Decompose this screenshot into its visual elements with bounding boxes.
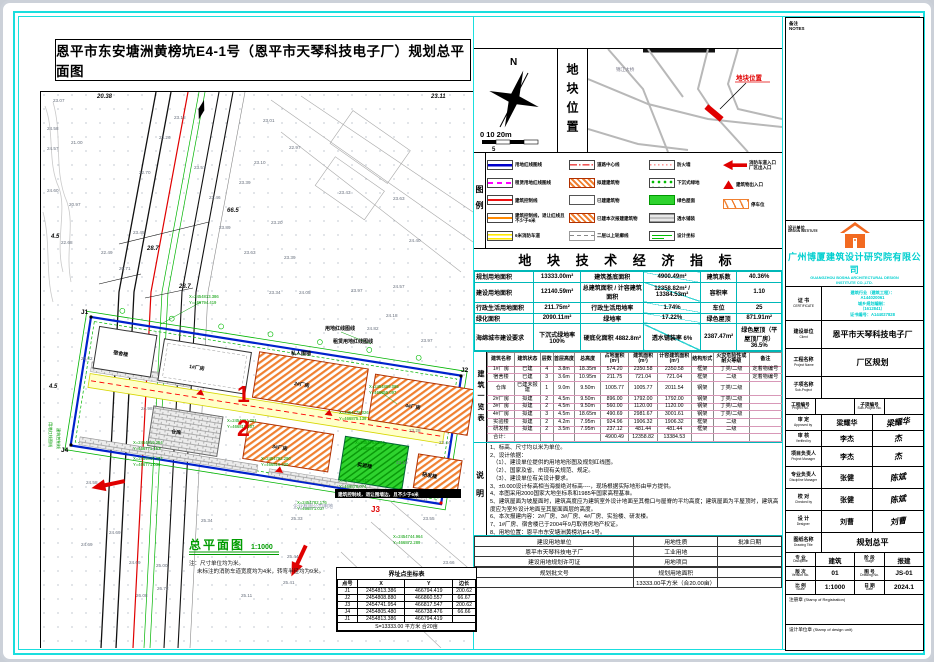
table-cell: 17.22% (644, 313, 701, 324)
legend-item: 建筑控制线 (487, 195, 569, 205)
table-cell: 实验楼 (488, 418, 515, 426)
table-cell: 拟建 (514, 418, 540, 426)
project-row: 工程名称Project Name 厂区规划 (786, 349, 923, 377)
legend-item: 绿色屋面 (649, 195, 723, 205)
table-cell: 2 (540, 396, 553, 404)
checked-name: 张健 (822, 489, 873, 510)
certificate-lines: 建筑行业（建筑工程）：A144020061城乡规划编制：（1612841）证书编… (822, 287, 923, 320)
plan-label: Y=466872.289 (393, 540, 421, 545)
legend-swatch-icon (487, 178, 513, 188)
table-cell: 工业用地 (634, 547, 718, 557)
company-name: 广州博厦建筑设计研究院有限公司 (786, 250, 923, 276)
legend-col-4: 消防车道入口 厂区出入口建筑物出入口停车位 (723, 156, 781, 245)
plan-label: X=2454778.026 (339, 410, 369, 415)
legend-label: 拟建建筑物 (597, 180, 647, 185)
table-header: 点号 (338, 580, 358, 588)
table-header: Y (405, 580, 453, 588)
legend-label: 道路中心线 (597, 162, 647, 167)
legend-label: 建筑控制线 (515, 198, 565, 203)
table-cell: 已建 (514, 366, 540, 374)
table-header: 边长 (453, 580, 476, 588)
map-road-bar (643, 49, 715, 53)
project-no-row: 工程编号Project No. 子项编号Sub-Project No. (786, 399, 923, 415)
table-row: 宿舍楼已建33.6m10.95m211.75721.04721.04框架二级定着… (488, 374, 782, 382)
table-cell: 66.66 (453, 609, 476, 616)
table-cell (514, 434, 540, 442)
table-cell: 绿地率 (581, 313, 644, 324)
plan-label: 23.34 (269, 290, 281, 295)
table-cell: 拟建 (514, 411, 540, 419)
legend-swatch-icon (649, 195, 675, 205)
table-cell (749, 434, 781, 442)
table-cell: 466860.557 (405, 595, 453, 602)
plan-title: 总平面图 (189, 537, 245, 552)
table-cell: 7.95m (575, 418, 601, 426)
legend-item: 租赁用地红线图线 (487, 178, 569, 188)
plan-note-2: 未标注的消防车道宽度均为4米，转弯半径均为9米。 (197, 567, 324, 575)
table-cell: 钢架 (691, 411, 714, 419)
legend-label: 租赁用地红线图线 (515, 180, 565, 185)
table-header: X (357, 580, 405, 588)
scale-date-row: 比 例Scale1:1000 日 期Date2024.1 (786, 581, 923, 595)
table-cell: 1906.32 (629, 418, 658, 426)
legend-item: 下沉式绿地 (649, 178, 723, 188)
legend-col-2: 道路中心线拟建建筑物已建建筑物已建本次报建建筑物二层以上轮廓线 (569, 156, 649, 245)
plan-label: 24.18 (386, 313, 398, 318)
plan-label: 4.5 (48, 384, 58, 390)
plan-label: 23.26 (159, 135, 171, 140)
table-cell: 二级 (714, 374, 750, 382)
table-cell: 12358.82 (629, 434, 658, 442)
plan-label: 23.10 (396, 460, 408, 465)
client-value: 恩平市天琴科技电子厂 (822, 321, 923, 348)
table-cell: 1120.00 (658, 403, 691, 411)
plan-label: 26.72 (157, 586, 169, 591)
table-row: 实验楼拟建24.2m7.95m924.961906.321906.32框架二级 (488, 418, 782, 426)
building-table-strip-label: 建筑一览表 (475, 370, 485, 425)
table-cell: 规划用地面积 (475, 272, 534, 283)
legend-item: 已建本次报建建筑物 (569, 213, 649, 223)
text-line: 1、标高、尺寸均以米为单位。 (490, 445, 779, 453)
scalebar-icon (482, 140, 538, 144)
plan-label: 23.57 (194, 165, 206, 170)
table-cell (718, 547, 782, 557)
plan-label: 23.10 (254, 160, 266, 165)
table-cell: 2454813.386 (357, 588, 405, 595)
plan-label: Y=466771.035 (133, 462, 161, 467)
plan-label: 23.97 (421, 338, 433, 343)
unit-stamp-box: 设计单位章 (Stamp of design unit) (786, 625, 923, 650)
text-line: （2）、国家及省、市现有关规范、规定。 (490, 468, 779, 476)
title-box: 恩平市东安塘洲黄榜坑E4-1号（恩平市天琴科技电子厂）规划总平面图 (55, 39, 471, 81)
table-cell (540, 434, 553, 442)
plan-label: 23.39 (284, 255, 296, 260)
table-cell (718, 578, 782, 588)
discipline-label-en: Discipline (793, 560, 808, 564)
titleblock: 备注NOTES 设计单位DESIGN INSTITUTE 广州博厦建筑设计研究院… (785, 17, 924, 651)
plan-label: 企业有限公司用地 (293, 503, 333, 510)
table-cell: 4.5m (553, 396, 575, 404)
table-cell: 9.50m (575, 381, 601, 395)
table-cell: 仓库 (488, 381, 515, 395)
boundary-point (69, 443, 72, 446)
legend-swatch-icon (569, 213, 595, 223)
table-cell: 3#厂房 (488, 403, 515, 411)
plan-label: 25.11 (241, 593, 253, 598)
legend-item: 道路中心线 (569, 160, 649, 170)
plan-label: 25.44 (287, 554, 299, 559)
table-cell: 4#厂房 (488, 411, 515, 419)
table-cell: 4900.49m² (644, 272, 701, 283)
table-cell: 恩平市天琴科技电子厂 (475, 547, 634, 557)
plan-label: Y=466875.139 (339, 416, 367, 421)
text-line: 7、1#厂房、宿舍楼已于2004年9月取得房地产权证。 (490, 522, 779, 530)
legend-swatch-icon (569, 178, 595, 188)
legend-label: 下沉式绿地 (677, 180, 723, 185)
plan-label: 24.57 (47, 146, 59, 151)
table-cell: 12140.59m² (533, 282, 581, 302)
plan-label: 24.69 (81, 542, 93, 547)
plan-label: X=2454816.254 (133, 456, 163, 461)
location-map: 锦江大桥 地块位置 (588, 49, 782, 152)
table-cell: 2 (540, 418, 553, 426)
legend-swatch-icon (569, 160, 595, 170)
table-cell: 2454805.480 (357, 609, 405, 616)
table-cell: 丁类/二级 (714, 366, 750, 374)
legend-swatch-icon (649, 213, 675, 223)
table-row: 恩平市天琴科技电子厂工业用地 (475, 547, 782, 557)
approved-name: 梁耀华 (822, 415, 873, 430)
plan-note-1: 注：尺寸单位均为米。 (189, 559, 244, 567)
version-drawno-row: 版 次Version No.01 图 号Drawing No.JS-01 (786, 567, 923, 581)
plan-label: J2 (461, 367, 469, 374)
legend-swatch-icon (649, 178, 675, 188)
plan-label: X=2454744.964 (393, 534, 423, 539)
drawing-title-label-en: Drawing Title (794, 544, 813, 548)
site-plan-svg: 总平面图 1:1000 注：尺寸单位均为米。 未标注的消防车道宽度均为4米，转弯… (41, 92, 473, 648)
table-row: J22454808.880466860.55766.67 (338, 595, 476, 602)
stage-label-en: Stage (865, 560, 874, 564)
legend-swatch-icon (487, 231, 513, 241)
table-cell: 二级 (714, 426, 750, 434)
table-cell: 560.00 (601, 403, 629, 411)
table-cell: 721.04 (629, 374, 658, 382)
table-cell: 237.12 (601, 426, 629, 434)
table-cell: 已建 (514, 374, 540, 382)
plan-label: Y=466876.074 (339, 484, 367, 489)
table-cell: 绿色屋顶（平屋顶厂房）36.5% (737, 324, 782, 351)
boundary-point (89, 315, 92, 318)
plan-label: 25.00 (156, 563, 168, 568)
plan-label: 24.69 (109, 530, 121, 535)
table-cell: 容积率 (700, 282, 736, 302)
table-row: 海绵城市建设要求下沉式绿地率 100%硬底化面积 4882.8m²透水铺装率 6… (475, 324, 782, 351)
table-header: 计容建筑面积(m²) (658, 353, 691, 367)
table-cell: 2454808.880 (357, 595, 405, 602)
table-cell: 下沉式绿地率 100% (533, 324, 581, 351)
table-cell: 规划用地面积 (634, 568, 718, 578)
table-cell: 海绵城市建设要求 (475, 324, 534, 351)
table-header: 首层高度 (553, 353, 575, 367)
plan-label: 24.98 (141, 406, 153, 411)
table-cell: 490.69 (601, 411, 629, 419)
client-row: 建设单位Client 恩平市天琴科技电子厂 (786, 321, 923, 349)
table-row: 4#厂房拟建34.5m18.65m490.692981.673001.61钢架丁… (488, 411, 782, 419)
north-arrow-icon: N 0 10 20m 5 (474, 49, 556, 152)
table-cell: 丁类/二级 (714, 411, 750, 419)
table-cell (553, 434, 575, 442)
table-cell: S=13333.00 平方米 合20亩 (338, 623, 476, 631)
table-cell: 1792.00 (629, 396, 658, 404)
table-cell: 3001.61 (658, 411, 691, 419)
table-cell: 建设用地规划许可证 (475, 557, 634, 567)
table-row: 建设用地规划许可证用地项目 (475, 557, 782, 567)
table-cell (453, 616, 476, 623)
table-cell: 绿色屋顶 (700, 313, 736, 324)
table-cell: 框架 (691, 366, 714, 374)
plan-label: 25.41 (283, 580, 295, 585)
table-cell: 924.96 (601, 418, 629, 426)
dm-row: 专业负责人Discipline Manager 张健 陈斌 (786, 467, 923, 489)
table-cell (749, 403, 781, 411)
legend-strip: 图例 (474, 153, 486, 248)
table-cell: 25 (737, 302, 782, 313)
plan-label: 24.05 (299, 290, 311, 295)
table-cell (714, 434, 750, 442)
unit-stamp-label: 设计单位章 (789, 627, 812, 632)
plan-label: 23.66 (443, 560, 455, 565)
date-value: 2024.1 (885, 581, 923, 594)
building-table-section: 建筑一览表 建筑名称建筑状态层数首层高度总高度占地面积(m²)建筑面积(m²)计… (474, 351, 782, 443)
legend-label: 设计坐标 (677, 233, 723, 238)
legend-label: 已建本次报建建筑物 (597, 216, 647, 221)
plan-label: 23.43 (339, 190, 351, 195)
table-cell: 1005.77 (601, 381, 629, 395)
legend-label: 建筑物出入口 (736, 182, 781, 187)
plan-label: 22.49 (101, 250, 113, 255)
table-cell: 建筑系数 (700, 272, 736, 283)
plan-label: 25.34 (201, 518, 213, 523)
table-cell: 合计： (488, 434, 515, 442)
table-row: S=13333.00 平方米 合20亩 (338, 623, 476, 631)
table-cell: 211.75 (601, 374, 629, 382)
table-cell: 2011.54 (658, 381, 691, 395)
legend-item: 消防车道入口 厂区出入口 (723, 160, 781, 170)
plan-label: 28.7 (178, 284, 191, 290)
table-cell: 车位 (700, 302, 736, 313)
plan-label: 24.60 (47, 188, 59, 193)
legend-swatch-icon (487, 195, 513, 205)
table-header: 建筑状态 (514, 353, 540, 367)
plan-label: 23.46 (209, 195, 221, 200)
plan-label: 66.5 (227, 208, 239, 214)
plan-label: 21.00 (71, 140, 83, 145)
table-cell: 1.74% (644, 302, 701, 313)
legend-swatch-icon (723, 199, 749, 209)
table-row: 13333.00平方米（合20.00亩） (475, 578, 782, 588)
table-cell (691, 434, 714, 442)
plan-label: Y=466816.420 (261, 462, 289, 467)
table-header: 备注 (749, 353, 781, 367)
table-cell: 1 (540, 381, 553, 395)
plan-label: 23.07 (53, 98, 65, 103)
table-cell: 1792.00 (658, 396, 691, 404)
table-cell: 3 (540, 374, 553, 382)
table-cell: J3 (338, 602, 358, 609)
discipline-stage-row: 专 业Discipline建筑 阶 段Stage报建 (786, 553, 923, 567)
verified-label-en: Verified by (796, 440, 811, 444)
plan-label: 2 (237, 415, 250, 441)
notes-strip-label: 说明 (475, 471, 486, 507)
table-cell (749, 381, 781, 395)
checked-row: 校 对Checked by 张健 陈斌 (786, 489, 923, 511)
plan-label: Y=466771.157 (133, 446, 161, 451)
scalebar-label: 0 10 20m (480, 130, 512, 139)
legend-item: 透水铺装 (649, 213, 723, 223)
table-cell: 2090.11m² (533, 313, 581, 324)
table-cell: 绿化面积 (475, 313, 534, 324)
plan-label: X=2454792.290 (261, 456, 291, 461)
table-cell: 二级 (714, 418, 750, 426)
plan-label: 23.55 (423, 516, 435, 521)
text-line: （1）、建设单位提供的用地地形图及规划红线图。 (490, 460, 779, 468)
registration-stamp-label-en: (Stamp of Registration) (804, 597, 845, 602)
plan-label: 24.58 (47, 126, 59, 131)
north-label: N (510, 57, 517, 68)
legend-item: 二层以上轮廓线 (569, 231, 649, 241)
legend-label: 已建建筑物 (597, 198, 647, 203)
legend-label: 消防车道入口 厂区出入口 (749, 160, 781, 170)
table-cell: 200.62 (453, 588, 476, 595)
plan-label: 23.18 (174, 115, 186, 120)
table-cell (575, 434, 601, 442)
designer-name: 刘曹 (822, 511, 873, 532)
plan-label: 23.45 (133, 230, 145, 235)
page-title: 恩平市东安塘洲黄榜坑E4-1号（恩平市天琴科技电子厂）规划总平面图 (56, 40, 470, 80)
building-table-strip: 建筑一览表 (474, 352, 487, 442)
plan-label: 25.02 (81, 356, 93, 361)
table-cell: 用地性质 (634, 537, 718, 547)
boundary-point (459, 374, 462, 377)
table-cell (475, 578, 634, 588)
plan-label: X=2454819.254 (133, 440, 163, 445)
plan-label: 20.38 (96, 94, 113, 100)
boundary-coordinates: 点号XY边长J12454813.386466794.419200.62J2245… (337, 579, 476, 631)
table-cell: 1.10 (737, 282, 782, 302)
table-cell: J1 (338, 616, 358, 623)
certificate-label-en: CERTIFICATE (793, 305, 814, 309)
plan-label: 用地红线图线 (324, 325, 355, 332)
plan-label: 23.20 (271, 220, 283, 225)
table-cell: 研发楼 (488, 426, 515, 434)
designer-row: 设 计Designer 刘曹 刘曹 (786, 511, 923, 533)
table-cell: 2 (540, 403, 553, 411)
registration-stamp-label: 注册章 (789, 597, 803, 602)
table-cell: 4.5m (553, 403, 575, 411)
table-cell: 9.0m (553, 381, 575, 395)
table-cell: 9.50m (575, 396, 601, 404)
legend-label: 停车位 (751, 202, 781, 207)
table-cell: 2350.58 (658, 366, 691, 374)
table-header: 总高度 (575, 353, 601, 367)
legend-label: 二层以上轮廓线 (597, 233, 647, 238)
plan-label: X=2454790.449 (339, 478, 369, 483)
table-cell: 3.6m (553, 374, 575, 382)
scale-label-en: Scale (796, 588, 804, 592)
legend-label: 防火墙 (677, 162, 723, 167)
table-cell: J4 (338, 609, 358, 616)
drawing-title-row: 图纸名称Drawing Title 规划总平 (786, 533, 923, 553)
certificate-box: 证 书CERTIFICATE 建筑行业（建筑工程）：A144020061城乡规划… (786, 287, 923, 321)
right-panel: N 0 10 20m 5 地块位置 (474, 17, 782, 649)
legend-item: 用地红线图线 (487, 160, 569, 170)
table-cell (718, 557, 782, 567)
table-cell: 2350.58 (629, 366, 658, 374)
notes-strip: 说明 (474, 443, 487, 535)
table-cell: 466794.419 (405, 588, 453, 595)
table-cell: 2454813.386 (357, 616, 405, 623)
divider-titleblock (782, 17, 783, 649)
design-unit-label-en: DESIGN INSTITUTE (788, 230, 818, 234)
boundary-table: 界址点坐标表 点号XY边长J12454813.386466794.419200.… (336, 567, 477, 632)
plan-label: Y=466855.097 (369, 390, 397, 395)
table-header: 火灾危险性或耐火等级 (714, 353, 750, 367)
text-line: 4、本图采用2000国家大地坐标系和1985年国家高程基准。 (490, 491, 779, 499)
table-cell: 4900.49 (601, 434, 629, 442)
legend: 图例 用地红线图线租赁用地红线图线建筑控制线建筑控制线，退让红线且不少于6米6米… (474, 153, 782, 249)
map-row: N 0 10 20m 5 地块位置 (474, 48, 782, 153)
table-row: 3#厂房拟建24.5m9.50m560.001120.001120.00钢架丁类… (488, 403, 782, 411)
table-cell: 1120.00 (629, 403, 658, 411)
plan-label: 26.08 (136, 593, 148, 598)
building-table: 建筑名称建筑状态层数首层高度总高度占地面积(m²)建筑面积(m²)计容建筑面积(… (487, 352, 782, 442)
titleblock-notes-box: 备注NOTES (786, 18, 923, 221)
table-row: 仓库已建未报建19.0m9.50m1005.771005.772011.54钢架… (488, 381, 782, 395)
plan-label: 20.97 (69, 202, 81, 207)
plan-label: Y=466794.419 (189, 300, 217, 305)
table-cell: 4 (540, 366, 553, 374)
plan-label: 用地红线图线 (47, 422, 54, 448)
project-no-label-en: Project No. (792, 407, 809, 411)
text-line: 5、建筑屋面为坡屋面时，建筑高度应为建筑室外设计地面至其檐口与屋脊的平均高度；建… (490, 499, 779, 514)
table-header: 建筑名称 (488, 353, 515, 367)
table-cell: J1 (338, 588, 358, 595)
approved-row: 审 定Approved by 梁耀华 梁耀华 (786, 415, 923, 431)
legend-label: 透水铺装 (677, 216, 723, 221)
plan-label: 建筑控制线，退让围墙边，且不少于6米 (337, 491, 419, 498)
table-cell: 行政生活用地率 (581, 302, 644, 313)
registration-stamp-box: 注册章 (Stamp of Registration) (786, 595, 923, 625)
table-row: J32454741.954466817.547200.62 (338, 602, 476, 609)
version-label-en: Version No. (792, 574, 810, 578)
designer-label-en: Designer (797, 523, 810, 527)
legend-swatch-icon (723, 160, 747, 170)
plan-label: 24.69 (129, 560, 141, 565)
table-cell: 框架 (691, 374, 714, 382)
table-cell: 宿舍楼 (488, 374, 515, 382)
table-cell: 建设用地单位 (475, 537, 634, 547)
table-cell: 建设用地面积 (475, 282, 534, 302)
table-cell: 框架 (691, 426, 714, 434)
table-cell: 10.95m (575, 374, 601, 382)
legend-item: 6米消防车道 (487, 231, 569, 241)
company-name-en2: INSTITUTE CO.,LTD. (836, 281, 873, 286)
design-unit-box: 设计单位DESIGN INSTITUTE 广州博厦建筑设计研究院有限公司 GUA… (786, 221, 923, 287)
table-row: 规划用地面积13333.00m²建筑基底面积4900.49m²建筑系数40.36… (475, 272, 782, 283)
plan-label: 23.97 (351, 288, 363, 293)
plan-label: 23.89 (219, 225, 231, 230)
table-cell: 2387.47m² (700, 324, 736, 351)
